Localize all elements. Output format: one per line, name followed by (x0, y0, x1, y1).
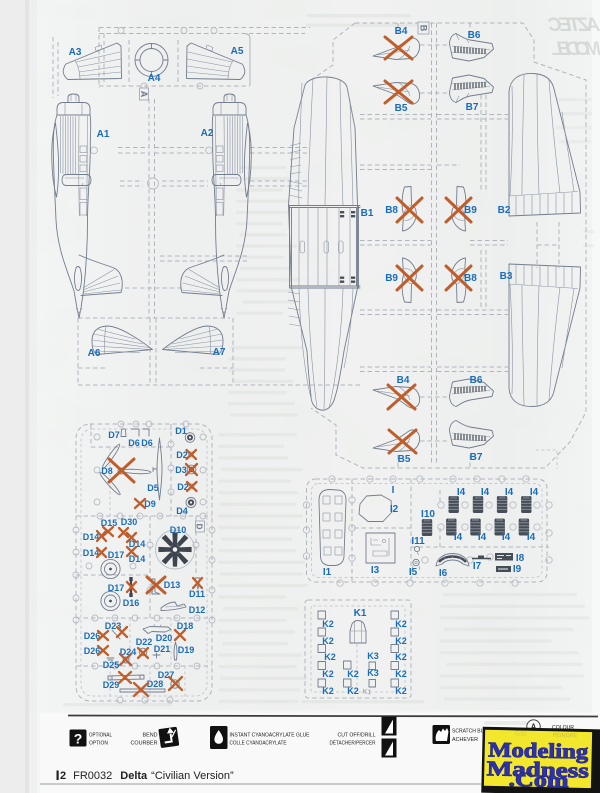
svg-text:K2: K2 (347, 686, 359, 696)
svg-text:I9: I9 (513, 564, 522, 575)
svg-text:A5: A5 (231, 46, 244, 57)
svg-text:D8: D8 (101, 466, 113, 476)
svg-text:.Com: .Com (508, 769, 569, 792)
svg-text:?: ? (74, 731, 83, 747)
svg-text:D20: D20 (156, 633, 173, 643)
svg-text:D19: D19 (178, 645, 195, 655)
svg-text:D6: D6 (141, 438, 153, 448)
svg-text:B9: B9 (385, 273, 398, 284)
svg-text:B2: B2 (498, 205, 511, 216)
svg-text:A3: A3 (69, 47, 82, 58)
svg-text:D25: D25 (103, 660, 120, 670)
svg-text:I8: I8 (516, 553, 525, 564)
svg-text:B5: B5 (395, 103, 408, 114)
svg-text:B4: B4 (395, 26, 408, 37)
svg-text:K2: K2 (395, 652, 407, 662)
svg-text:A4: A4 (148, 73, 161, 84)
svg-text:I4: I4 (454, 532, 463, 543)
svg-text:I7: I7 (473, 561, 482, 572)
svg-text:K1: K1 (362, 688, 372, 696)
svg-text:A1: A1 (97, 129, 110, 140)
svg-text:K3: K3 (367, 651, 379, 661)
svg-text:D6: D6 (128, 438, 140, 448)
svg-text:B7: B7 (466, 102, 479, 113)
svg-text:B6: B6 (470, 375, 483, 386)
svg-text:I6: I6 (439, 568, 448, 579)
svg-text:I4: I4 (505, 487, 514, 498)
svg-text:D4: D4 (176, 506, 188, 516)
svg-text:A6: A6 (88, 348, 101, 359)
svg-text:I3: I3 (371, 565, 380, 576)
svg-text:I2: I2 (390, 504, 399, 515)
svg-text:I4: I4 (530, 487, 539, 498)
svg-text:ACHEVER: ACHEVER (452, 737, 478, 743)
svg-text:K3: K3 (367, 668, 379, 678)
svg-text:B5: B5 (398, 454, 411, 465)
svg-text:B4: B4 (397, 375, 410, 386)
svg-text:A: A (139, 91, 149, 98)
svg-text:COLLE CYANOACRYLATE: COLLE CYANOACRYLATE (230, 740, 287, 746)
svg-text:K2: K2 (322, 686, 334, 696)
svg-text:D17: D17 (108, 583, 125, 593)
svg-text:D13: D13 (164, 580, 181, 590)
svg-text:DÉTACHER/PERCER: DÉTACHER/PERCER (330, 739, 376, 746)
svg-text:OPTION: OPTION (89, 740, 108, 746)
svg-text:K2: K2 (347, 669, 359, 679)
svg-text:2FR0032Delta“Civilian Version”: 2FR0032Delta“Civilian Version” (60, 770, 234, 782)
svg-text:AZTEC: AZTEC (548, 15, 600, 36)
svg-text:OPTIONAL: OPTIONAL (89, 732, 112, 738)
svg-text:I4: I4 (481, 487, 490, 498)
svg-text:D21: D21 (154, 644, 171, 654)
svg-text:B7: B7 (470, 452, 483, 463)
svg-text:PEINDRE: PEINDRE (552, 733, 577, 740)
svg-text:I11: I11 (411, 536, 425, 547)
svg-text:D5: D5 (147, 483, 159, 493)
svg-text:D3: D3 (175, 465, 187, 475)
svg-text:I: I (392, 485, 395, 496)
svg-text:D1: D1 (175, 426, 187, 436)
svg-text:I4: I4 (502, 532, 511, 543)
svg-text:A7: A7 (213, 347, 226, 358)
svg-text:B1: B1 (361, 208, 374, 219)
svg-text:D22: D22 (136, 637, 153, 647)
svg-text:B: B (419, 25, 429, 32)
svg-text:D7: D7 (108, 430, 120, 440)
svg-text:K2: K2 (395, 619, 407, 629)
svg-text:MODEL: MODEL (551, 39, 600, 60)
svg-text:INSTANT CYANOACRYLATE GLUE: INSTANT CYANOACRYLATE GLUE (230, 732, 310, 738)
svg-text:B9: B9 (464, 205, 477, 216)
svg-text:D11: D11 (189, 589, 205, 599)
svg-text:D28: D28 (147, 679, 164, 689)
svg-text:CUT OFF/DRILL: CUT OFF/DRILL (338, 732, 376, 738)
svg-text:D10: D10 (170, 525, 187, 535)
svg-text:I10: I10 (421, 509, 435, 520)
svg-text:A2: A2 (201, 128, 214, 139)
svg-text:B8: B8 (385, 205, 398, 216)
svg-text:K2: K2 (395, 669, 407, 679)
svg-text:I5: I5 (409, 567, 418, 578)
svg-text:D29: D29 (103, 680, 120, 690)
svg-text:D12: D12 (189, 605, 206, 615)
svg-text:K2: K2 (322, 619, 334, 629)
svg-text:K2: K2 (322, 669, 334, 679)
svg-text:I1: I1 (323, 567, 332, 578)
svg-text:GSI: GSI (515, 730, 527, 737)
svg-text:D17: D17 (108, 550, 125, 560)
svg-text:D16: D16 (123, 598, 140, 608)
svg-text:I4: I4 (457, 487, 466, 498)
svg-text:B3: B3 (500, 271, 513, 282)
svg-text:I4: I4 (527, 532, 536, 543)
svg-text:B8: B8 (464, 273, 477, 284)
svg-text:BEND: BEND (143, 732, 158, 738)
svg-text:K1: K1 (354, 608, 367, 619)
svg-text:D30: D30 (121, 517, 138, 527)
svg-text:I4: I4 (478, 532, 487, 543)
svg-text:K2: K2 (324, 652, 336, 662)
svg-text:D: D (195, 524, 204, 530)
svg-text:B6: B6 (468, 30, 481, 41)
svg-text:COURBER: COURBER (131, 740, 158, 746)
svg-text:K2: K2 (395, 686, 407, 696)
